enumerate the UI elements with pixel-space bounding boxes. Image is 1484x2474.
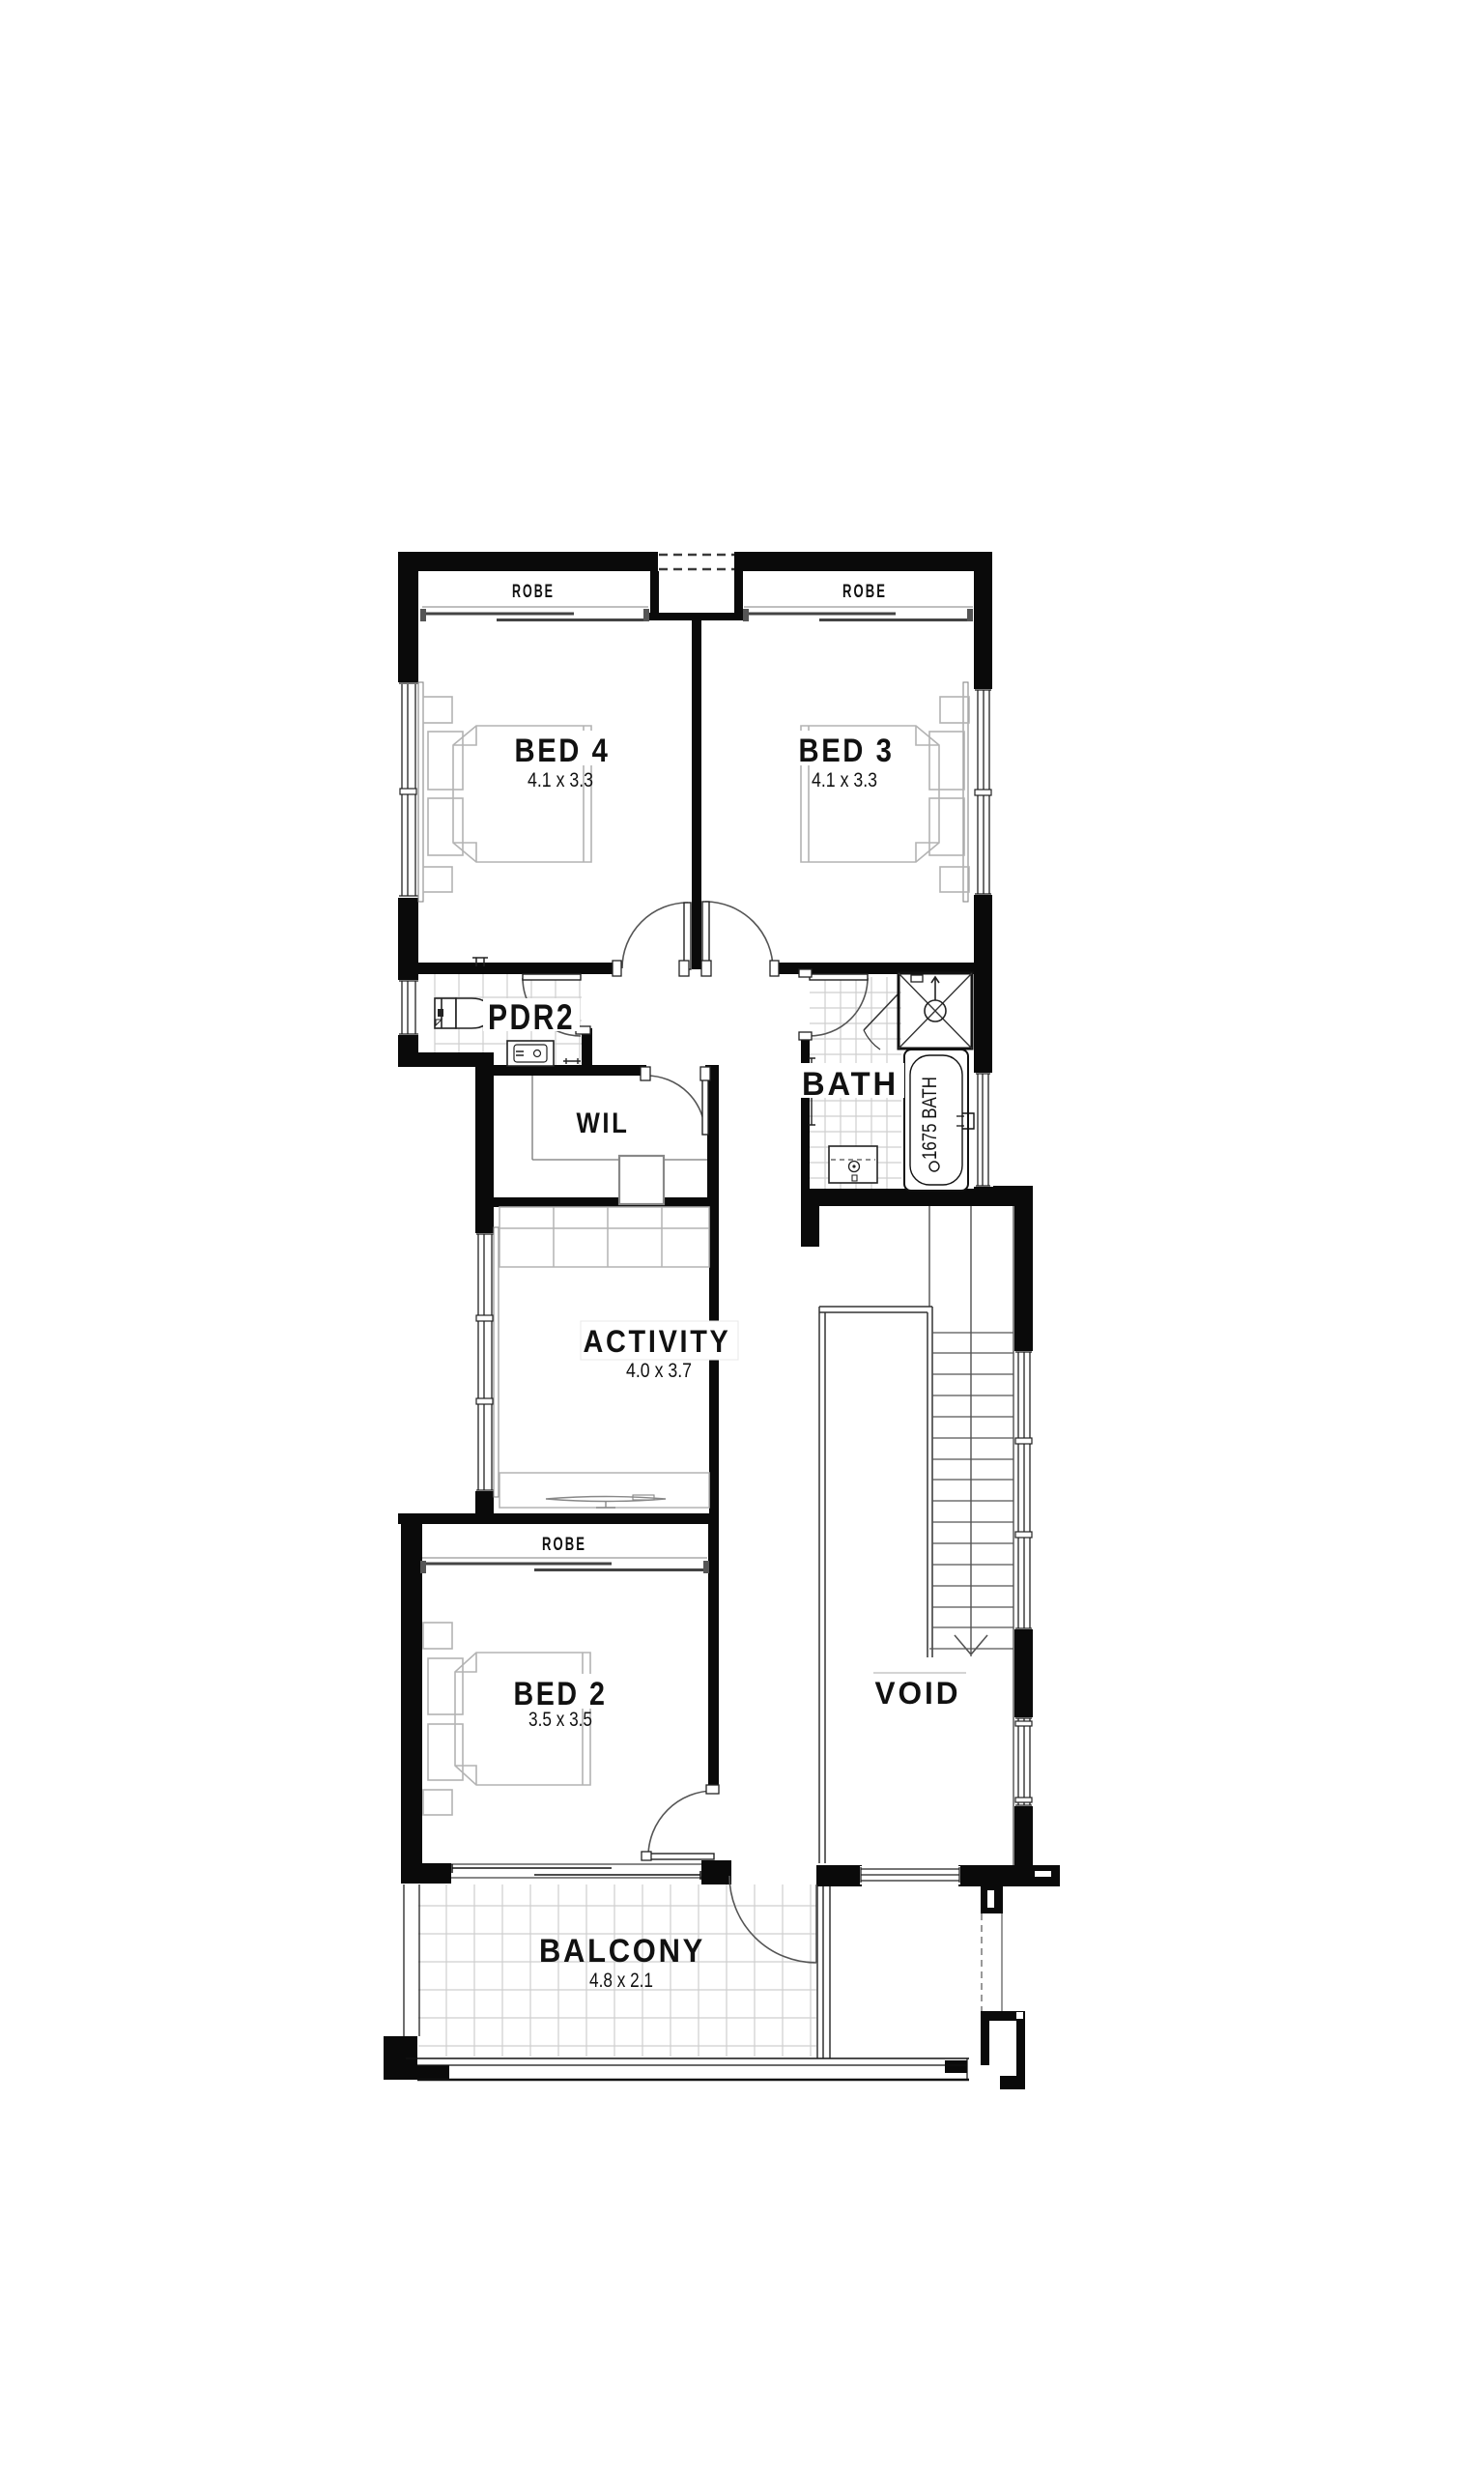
- svg-text:VOID: VOID: [875, 1676, 961, 1711]
- svg-text:ROBE: ROBE: [512, 582, 555, 602]
- svg-text:3.5 x 3.5: 3.5 x 3.5: [528, 1709, 592, 1731]
- svg-text:1675 BATH: 1675 BATH: [919, 1077, 941, 1160]
- svg-text:BED 2: BED 2: [514, 1676, 608, 1712]
- svg-text:4.1 x 3.3: 4.1 x 3.3: [812, 769, 877, 791]
- svg-text:4.1 x 3.3: 4.1 x 3.3: [528, 769, 593, 791]
- svg-text:ROBE: ROBE: [842, 582, 887, 602]
- svg-text:BATH: BATH: [802, 1066, 899, 1103]
- svg-text:4.0 x 3.7: 4.0 x 3.7: [626, 1360, 692, 1382]
- svg-text:BED 3: BED 3: [799, 733, 895, 769]
- svg-text:ACTIVITY: ACTIVITY: [584, 1324, 731, 1359]
- svg-text:PDR2: PDR2: [488, 997, 575, 1037]
- svg-text:BED 4: BED 4: [515, 733, 611, 769]
- svg-text:ROBE: ROBE: [542, 1535, 586, 1555]
- svg-text:WIL: WIL: [577, 1108, 630, 1139]
- svg-text:4.8 x 2.1: 4.8 x 2.1: [589, 1970, 653, 1992]
- svg-text:BALCONY: BALCONY: [539, 1933, 705, 1970]
